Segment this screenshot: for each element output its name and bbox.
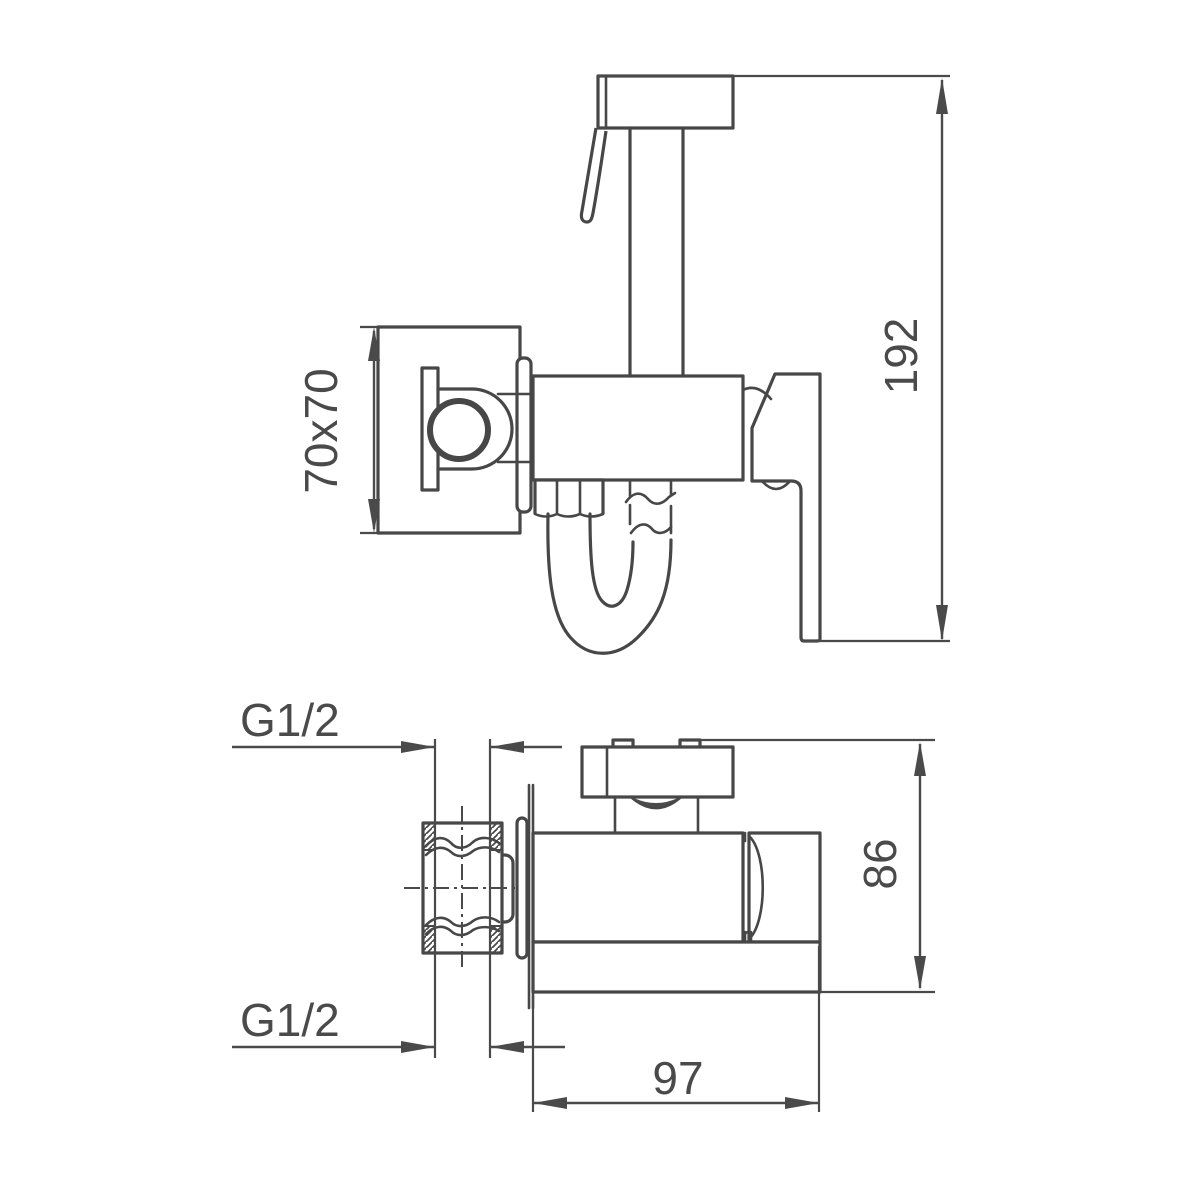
escutcheon-edge (517, 818, 527, 958)
handle-cap-bottom (749, 833, 820, 942)
holder-ring (430, 401, 488, 459)
dimension-thread-bottom: G1/2 (232, 994, 565, 1053)
sprayer-holder-bottom (582, 740, 733, 833)
holder-block (582, 747, 733, 797)
plate-edge-strip (517, 358, 531, 512)
valve-body (533, 376, 743, 480)
inlet-connector (404, 806, 520, 972)
body-block-bottom (533, 833, 743, 942)
thread-label-bottom: G1/2 (240, 994, 340, 1046)
body-base-slab (533, 942, 820, 992)
nozzle-shade (634, 798, 678, 807)
hose-break-mark-1 (626, 493, 675, 504)
lever-handle (752, 374, 820, 641)
drawing-svg: 70x70 192 (0, 0, 1200, 1200)
thread-label-top: G1/2 (240, 694, 340, 746)
hose-inner (590, 514, 633, 606)
hose-outer (548, 514, 671, 653)
plate-dimension-label: 70x70 (295, 368, 347, 493)
front-view: 70x70 192 (295, 76, 950, 653)
hex-nut-bottom (535, 514, 603, 517)
holder-stems (615, 797, 698, 833)
height-dimension-label: 192 (875, 318, 927, 395)
technical-drawing-canvas: 70x70 192 (0, 0, 1200, 1200)
hose-upper-tubes (630, 480, 671, 533)
hatch-corner (490, 823, 502, 850)
height-86-label: 86 (854, 838, 906, 889)
sprayer-trigger (581, 128, 606, 222)
bottom-view: G1/2 G1/2 86 97 (232, 694, 935, 1112)
dimension-height-192: 192 (598, 76, 950, 641)
hose-break-mark-2 (631, 524, 671, 533)
dimension-plate-70x70: 70x70 (295, 327, 380, 533)
sprayer-shaft (630, 128, 683, 376)
hex-nut (535, 480, 603, 514)
sprayer-head (598, 76, 733, 128)
depth-97-label: 97 (652, 1052, 703, 1104)
